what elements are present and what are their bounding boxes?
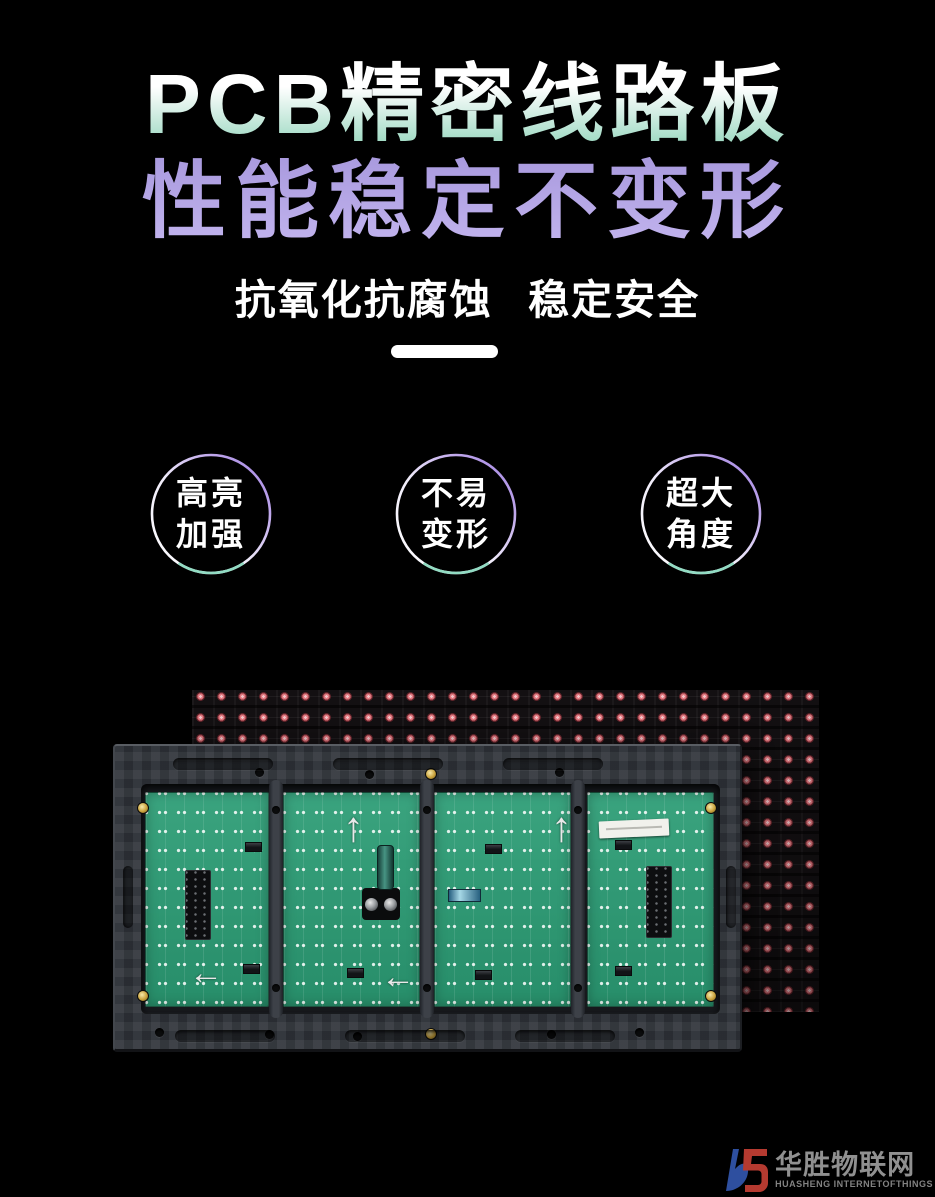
frame-notch — [333, 758, 443, 770]
gold-screw-hole — [705, 990, 717, 1002]
frame-notch — [515, 1030, 615, 1042]
terminal-screw — [365, 898, 378, 911]
badge-text-line: 变形 — [421, 517, 491, 552]
smd-chip — [245, 842, 262, 852]
feature-badge-wide-angle: 超大 角度 — [639, 452, 763, 576]
badge-text-line: 不易 — [421, 476, 491, 511]
arrow-up-icon: ↑ — [343, 806, 364, 848]
badge-text-line: 高亮 — [176, 476, 246, 511]
screw-hole — [635, 1028, 644, 1037]
smd-chip — [615, 840, 632, 850]
idc-connector — [185, 870, 211, 940]
led-module-back-photo: ↑ ↑ ← ← — [113, 744, 742, 1052]
power-terminal-block — [362, 888, 400, 920]
frame-notch — [503, 758, 603, 770]
label-sticker — [599, 818, 670, 838]
smd-chip — [615, 966, 632, 976]
badge-text-line: 加强 — [176, 517, 246, 552]
badge-text-line: 超大 — [666, 476, 736, 511]
smd-chip — [485, 844, 502, 854]
smd-chip — [347, 968, 364, 978]
terminal-screw — [384, 898, 397, 911]
feature-badge-no-deform: 不易 变形 — [394, 452, 518, 576]
smd-chip — [475, 970, 492, 980]
arrow-up-icon: ↑ — [551, 806, 572, 848]
idc-connector — [646, 866, 672, 938]
promo-poster: PCB精密线路板 性能稳定不变形 抗氧化抗腐蚀 稳定安全 高亮 加强 不易 变形… — [0, 0, 935, 1197]
huasheng-logo-icon — [720, 1147, 770, 1193]
frame-rib — [269, 780, 283, 1018]
frame-notch — [175, 1030, 275, 1042]
gold-screw-hole — [705, 802, 717, 814]
smd-chip — [243, 964, 260, 974]
feature-badge-brightness: 高亮 加强 — [149, 452, 273, 576]
sub-title: 性能稳定不变形 — [0, 157, 935, 246]
watermark-name-cn: 华胜物联网 — [775, 1151, 915, 1179]
gold-screw-hole — [137, 802, 149, 814]
arrow-left-icon: ← — [381, 960, 415, 994]
frame-notch — [345, 1030, 465, 1042]
module-recess — [141, 784, 720, 1014]
arrow-left-icon: ← — [189, 956, 223, 990]
divider-pill — [391, 345, 498, 358]
frame-slot — [726, 866, 736, 928]
tagline: 抗氧化抗腐蚀 稳定安全 — [0, 266, 935, 326]
watermark-name-en: HUASHENG INTERNETOFTHINGS — [775, 1179, 933, 1189]
brand-watermark: 华胜物联网 HUASHENG INTERNETOFTHINGS — [720, 1147, 933, 1193]
main-title: PCB精密线路板 — [0, 60, 935, 149]
smd-component — [448, 889, 481, 902]
frame-slot — [123, 866, 133, 928]
screw-hole — [365, 770, 374, 779]
frame-rib — [571, 780, 585, 1018]
gold-screw-hole — [137, 990, 149, 1002]
frame-notch — [173, 758, 273, 770]
screw-hole — [155, 1028, 164, 1037]
capacitor-component — [377, 845, 394, 890]
frame-rib — [420, 780, 434, 1018]
badge-text-line: 角度 — [666, 517, 736, 552]
